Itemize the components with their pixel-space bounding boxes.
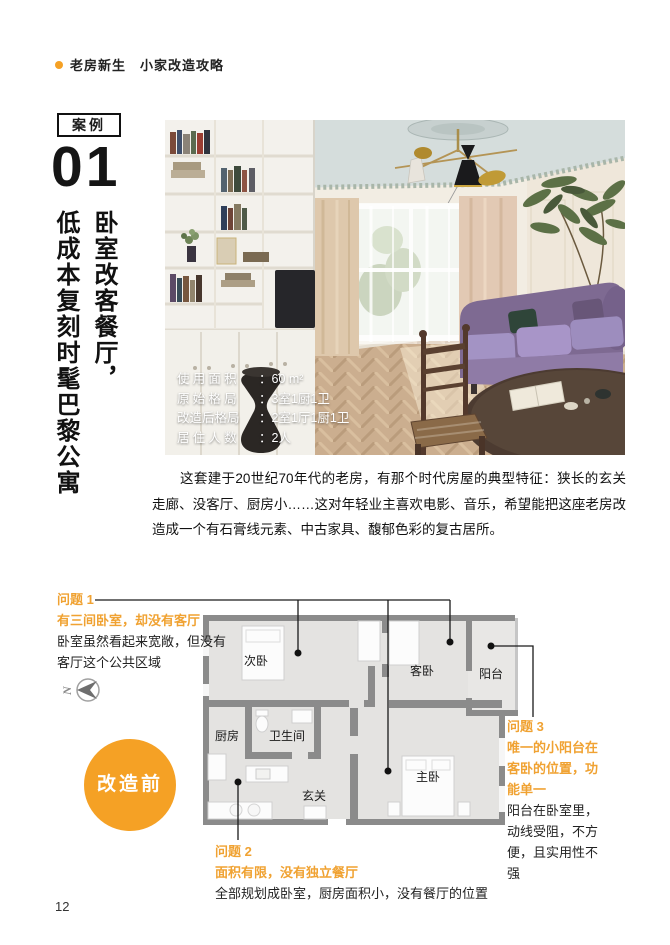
callout-dot-guest-bedroom xyxy=(447,639,454,646)
header-bullet-icon xyxy=(55,61,63,69)
callout-dot-master-bedroom xyxy=(385,768,392,775)
info-row-occupants: 居住人数：2人 xyxy=(177,429,349,449)
problem-1-detail: 卧室虽然看起来宽敞，但没有客厅这个公共区域 xyxy=(57,631,235,673)
window xyxy=(351,204,469,344)
tv xyxy=(275,270,315,328)
series-title: 老房新生 xyxy=(70,58,126,73)
compass-north-label: N xyxy=(60,685,74,696)
intro-paragraph: 这套建于20世纪70年代的老房，有那个时代房屋的典型特征：狭长的玄关走廊、没客厅… xyxy=(152,466,626,543)
info-row-original-layout: 原始格局：3室1厨1卫 xyxy=(177,390,349,410)
problem-2-headline: 面积有限，没有独立餐厅 xyxy=(215,862,545,883)
problem-1-annotation: 问题 1 有三间卧室，却没有客厅 卧室虽然看起来宽敞，但没有客厅这个公共区域 xyxy=(57,589,235,673)
hero-photo: 使用面积：60 m² 原始格局：3室1厨1卫 改造后格局：2室1厅1厨1卫 居住… xyxy=(165,120,625,455)
problem-3-id: 问题 3 xyxy=(507,716,607,737)
stage-badge-before: 改造前 xyxy=(84,739,176,831)
problem-1-headline: 有三间卧室，却没有客厅 xyxy=(57,610,235,631)
book-page: 老房新生小家改造攻略 案例 01 卧室改客餐厅， 低成本复刻时髦巴黎公寓 xyxy=(0,0,670,945)
problem-2-id: 问题 2 xyxy=(215,841,545,862)
callout-dot-kitchen xyxy=(235,779,242,786)
problem-2-annotation: 问题 2 面积有限，没有独立餐厅 全部规划成卧室，厨房面积小，没有餐厅的位置 xyxy=(215,841,545,904)
room-label-master-bedroom: 主卧 xyxy=(416,770,440,784)
info-row-area: 使用面积：60 m² xyxy=(177,370,349,390)
case-title-line2: 低成本复刻时髦巴黎公寓 xyxy=(46,210,84,640)
photo-info-overlay: 使用面积：60 m² 原始格局：3室1厨1卫 改造后格局：2室1厅1厨1卫 居住… xyxy=(177,370,349,448)
case-number: 01 xyxy=(51,134,120,200)
compass-icon: N xyxy=(60,679,99,701)
room-label-hallway: 玄关 xyxy=(302,788,326,803)
case-title-line1: 卧室改客餐厅， xyxy=(84,210,122,640)
room-label-kitchen: 厨房 xyxy=(215,728,239,743)
info-row-new-layout: 改造后格局：2室1厅1厨1卫 xyxy=(177,409,349,429)
problem-3-headline: 唯一的小阳台在客卧的位置，功能单一 xyxy=(507,737,607,800)
room-label-guest-bedroom: 客卧 xyxy=(410,663,434,678)
room-label-bathroom: 卫生间 xyxy=(269,729,305,743)
callout-dot-second-bedroom xyxy=(295,650,302,657)
case-title-vertical: 卧室改客餐厅， 低成本复刻时髦巴黎公寓 xyxy=(46,210,122,640)
problem-2-detail: 全部规划成卧室，厨房面积小，没有餐厅的位置 xyxy=(215,883,545,904)
room-label-balcony: 阳台 xyxy=(479,666,503,681)
callout-dot-balcony xyxy=(488,643,495,650)
page-number: 12 xyxy=(55,899,69,914)
series-subtitle: 小家改造攻略 xyxy=(140,58,224,73)
running-header: 老房新生小家改造攻略 xyxy=(70,55,224,74)
room-label-second-bedroom: 次卧 xyxy=(244,654,268,668)
problem-1-id: 问题 1 xyxy=(57,589,235,610)
